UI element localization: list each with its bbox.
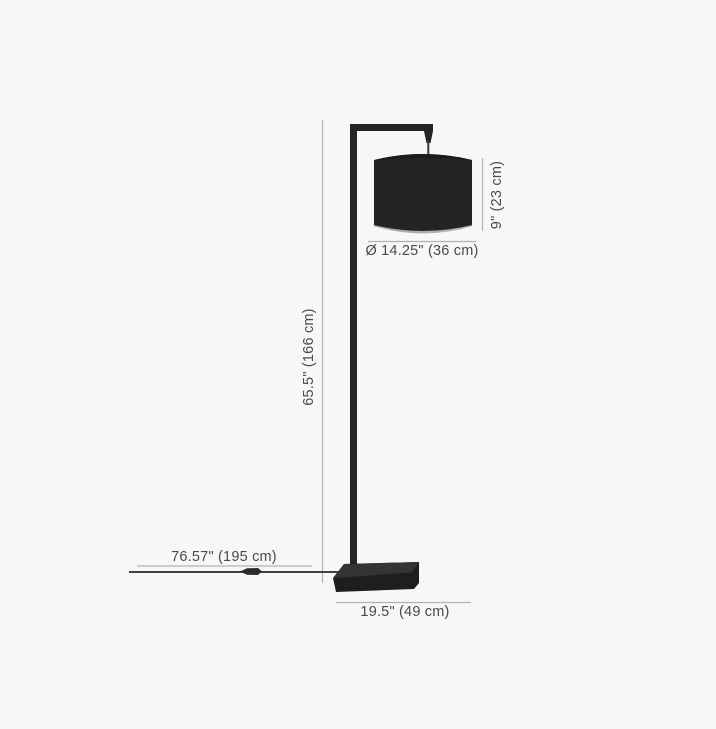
lamp-arm (350, 124, 433, 131)
floor-lamp-illustration (0, 0, 716, 729)
cord-length-label: 76.57" (195 cm) (171, 549, 277, 565)
lamp-shade (374, 154, 472, 231)
base-width-label: 19.5" (49 cm) (360, 604, 449, 620)
product-dimension-diagram: 65.5" (166 cm) Ø 14.25" (36 cm) 9" (23 c… (0, 0, 716, 729)
lamp-pole (350, 124, 357, 570)
overall-height-label: 65.5" (166 cm) (301, 308, 317, 405)
shade-height-label: 9" (23 cm) (489, 161, 505, 229)
power-plug (240, 568, 262, 575)
shade-hanger-rod (427, 140, 429, 155)
shade-diameter-label: Ø 14.25" (36 cm) (365, 243, 478, 259)
